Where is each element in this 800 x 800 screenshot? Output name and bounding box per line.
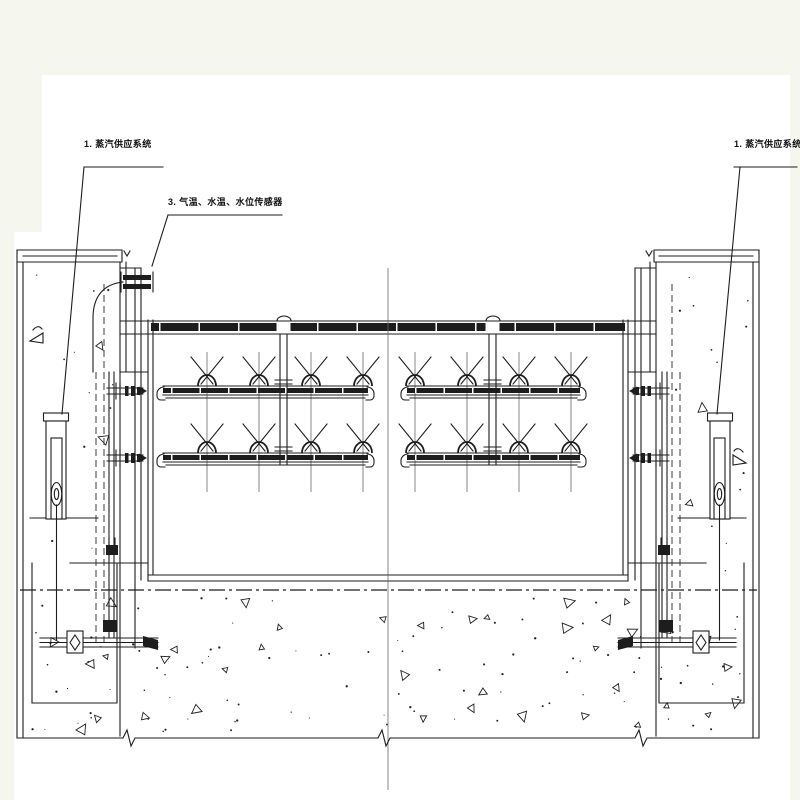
sensor-junction-box xyxy=(123,275,151,280)
label-sensors: 3. 气温、水温、水位传感器 xyxy=(168,196,283,208)
engineering-drawing xyxy=(0,0,800,800)
drawing-canvas: 1. 蒸汽供应系统 3. 气温、水温、水位传感器 1. 蒸汽供应系统 xyxy=(0,0,800,800)
label-steam-supply-right: 1. 蒸汽供应系统 xyxy=(734,138,800,150)
label-steam-supply-left: 1. 蒸汽供应系统 xyxy=(84,138,152,150)
paper-sheet xyxy=(14,75,790,800)
